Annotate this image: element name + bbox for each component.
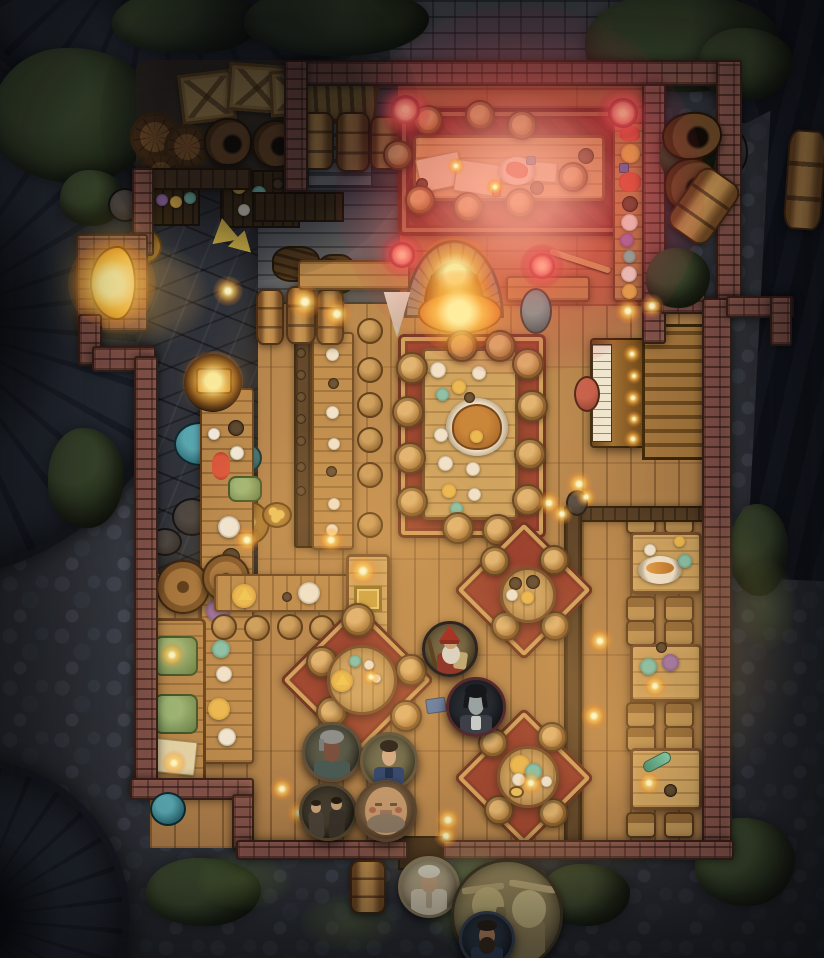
bar-plate-2	[328, 378, 339, 389]
token-gnome-wizard-hat-brim	[440, 640, 459, 644]
booth-mug-1	[656, 642, 667, 653]
battlemap-canvas[interactable]	[0, 0, 824, 958]
lamp-stand	[566, 490, 588, 516]
cleaver	[208, 428, 220, 440]
feast-plate-9	[442, 484, 456, 498]
feast-plate-6	[470, 430, 483, 443]
red-table-mug-2	[578, 148, 594, 164]
feast-plate-1	[430, 362, 446, 378]
booth-chair-4	[664, 596, 694, 622]
foliage-left-upper	[0, 48, 157, 183]
bar-plate-1	[326, 348, 339, 361]
feast-chair-5	[512, 348, 544, 380]
kitchen-pot-2	[218, 516, 240, 538]
roast-turkey	[452, 404, 502, 450]
glowing-bread-platter	[418, 292, 502, 334]
blue-pot-outside	[150, 792, 186, 826]
round-b-mug	[349, 655, 361, 667]
token-dwarf-brow-left	[375, 803, 382, 806]
flower-lamp-1	[391, 95, 420, 124]
hearth-barrel-3	[316, 289, 344, 345]
bar-mug-6	[296, 436, 306, 446]
corridor-weeds-2	[646, 248, 710, 308]
round-b-chair-3	[395, 654, 427, 686]
red-chair-8	[383, 140, 413, 170]
booth-chair-7	[626, 702, 656, 728]
veg-basket-greens	[228, 476, 262, 502]
side-stool-1	[211, 614, 237, 640]
partition-wall-h	[564, 506, 724, 522]
shelf-food-8	[623, 250, 636, 263]
hanging-meat	[212, 452, 230, 480]
booth-chair-11	[626, 812, 656, 838]
wall-south-west	[236, 840, 408, 860]
door-barrel	[350, 860, 386, 914]
feast-chair-7	[514, 438, 546, 470]
broken-barrel-storage-1	[204, 118, 252, 166]
flower-lamp-2	[608, 98, 638, 128]
edge-barrel	[783, 129, 824, 231]
token-boy-blue-collar	[385, 768, 392, 777]
feast-chair-6	[516, 390, 548, 422]
token-bearded-man-beard	[479, 937, 495, 954]
bar-plate-3	[326, 406, 339, 419]
daybed-cushion-1	[154, 636, 198, 676]
treasure-chest	[196, 368, 232, 394]
bar-plate-5	[326, 466, 337, 477]
bar-mug-2	[296, 348, 306, 358]
feast-plate-7	[438, 456, 453, 471]
feast-chair-2	[392, 396, 424, 428]
foliage-left-mid	[48, 428, 124, 528]
token-two-children[interactable]	[299, 783, 357, 841]
token-bearded-man-hair	[477, 920, 497, 931]
feast-plate-3	[472, 366, 486, 380]
shelf-food-9	[621, 266, 637, 282]
bar-stool-2	[357, 357, 383, 383]
note-parchment	[532, 161, 557, 183]
booth-plate-3	[662, 654, 679, 671]
feast-chair-9	[446, 330, 478, 362]
shelf-food-1	[620, 126, 640, 142]
red-chair-5	[405, 185, 435, 215]
blue-book	[425, 697, 447, 715]
feast-plate-10	[468, 488, 481, 501]
wall-stair-west	[284, 60, 308, 192]
round-a-mug-2	[526, 575, 540, 589]
round-a-chair-2	[539, 545, 569, 575]
red-chair-7	[505, 188, 535, 218]
side-stool-2	[244, 615, 270, 641]
red-chair-3	[507, 110, 537, 140]
feast-plate-2	[452, 380, 466, 394]
token-pale-elf-hair-right	[482, 694, 489, 709]
daybed-cushion-2	[154, 694, 198, 734]
blue-quill	[526, 156, 536, 165]
storage-barrel-2	[336, 112, 370, 172]
round-b-chair-5	[390, 700, 422, 732]
wall-south-east	[442, 840, 734, 860]
kitchen-plate-3	[212, 640, 230, 658]
wall-yard-v	[770, 296, 792, 346]
bar-stool-4	[357, 427, 383, 453]
kitchen-pot-1	[228, 420, 244, 436]
booth-table-2	[630, 644, 702, 702]
stone-circle-southwest	[0, 758, 130, 958]
red-chair-4	[558, 162, 588, 192]
shelf-food-5	[622, 196, 638, 212]
booth-plate-1	[644, 544, 656, 556]
bar-plate-4	[328, 438, 340, 450]
round-a-chair-1	[480, 546, 510, 576]
red-chair-6	[453, 192, 483, 222]
lemon	[674, 536, 685, 547]
wall-left-lower	[134, 356, 158, 792]
booth-plate-2	[678, 554, 692, 568]
shelf-food-4	[619, 172, 641, 192]
token-minotaur-statues-bull-head-2	[512, 890, 546, 928]
token-elder-robed-hair	[418, 865, 440, 878]
token-dwarf[interactable]	[355, 780, 417, 842]
bar-plate-6	[328, 498, 340, 510]
shelf-food-10	[622, 284, 637, 299]
kitchen-plate-5	[208, 698, 230, 720]
bar-mug-7	[296, 462, 306, 472]
token-elder-woman[interactable]	[302, 722, 362, 782]
shelf-food-6	[621, 214, 638, 231]
booth-chair-6	[664, 620, 694, 646]
token-bearded-man[interactable]	[459, 911, 515, 958]
wall-right-main	[702, 298, 732, 850]
feast-chair-4	[396, 486, 428, 518]
round-b-dot-2	[372, 674, 381, 683]
feast-plate-4	[436, 388, 449, 401]
feast-chair-10	[484, 330, 516, 362]
booth-chair-5	[626, 620, 656, 646]
wall-kitchen-north	[138, 168, 252, 190]
roast-fish	[646, 562, 674, 574]
kitchen-dot-3	[184, 192, 196, 204]
kitchen-dot-1	[156, 194, 168, 206]
kitchen-plate-4	[216, 666, 232, 682]
token-pale-elf[interactable]	[446, 677, 506, 737]
veg-basket-potatoes	[262, 502, 292, 528]
hearth-barrel-2	[286, 286, 316, 344]
kitchen-plate-1	[230, 446, 244, 460]
bar-stool-3	[357, 392, 383, 418]
red-die	[492, 188, 501, 197]
token-gnome-wizard[interactable]	[422, 621, 478, 677]
round-a-lemon	[521, 591, 534, 604]
feast-mug-1	[464, 392, 475, 403]
token-boy-blue-hair	[380, 740, 399, 752]
side-mug	[282, 592, 292, 602]
round-c-plate-3	[512, 773, 525, 786]
token-dwarf-brow-right	[390, 803, 397, 806]
token-two-children-body-1	[308, 812, 324, 839]
booth-chair-8	[664, 702, 694, 728]
token-pale-elf-shirt	[471, 716, 482, 730]
side-plate-2	[298, 582, 320, 604]
bar-plate-7	[326, 524, 338, 536]
bar-stool-6	[357, 512, 383, 538]
daybed-papers	[152, 738, 197, 776]
booth-chair-12	[664, 812, 694, 838]
shelf-food-2	[621, 144, 640, 163]
feast-chair-3	[394, 442, 426, 474]
bar-mug-4	[296, 392, 306, 402]
bar-stool-1	[357, 318, 383, 344]
token-gnome-wizard-staff	[426, 637, 437, 668]
hearth-barrel-1	[256, 289, 284, 345]
round-c-chair-2	[537, 722, 567, 752]
feast-chair-1	[396, 352, 428, 384]
flower-lamp-4	[529, 253, 555, 279]
round-b-dot-1	[364, 660, 374, 670]
feast-plate-5	[434, 428, 448, 442]
round-b-chair-1	[341, 603, 375, 637]
red-table-mug-1	[530, 181, 544, 195]
oven-window	[90, 246, 136, 320]
token-elder-woman-shoulders	[314, 761, 351, 782]
storage-jar-5	[238, 204, 250, 216]
kitchen-dot-2	[170, 196, 182, 208]
bar-mug-8	[296, 486, 306, 496]
token-two-children-hair-2	[331, 797, 341, 804]
blue-jug	[520, 288, 552, 334]
bar-mug-3	[296, 370, 306, 380]
piano-stool	[574, 376, 600, 412]
token-elder-woman-hair-side	[319, 739, 324, 751]
flower-lamp-3	[389, 242, 415, 268]
feast-chair-8	[512, 484, 544, 516]
bar-mug-5	[296, 414, 306, 424]
gray-room-shelf	[252, 192, 344, 222]
kitchen-bowl	[218, 728, 236, 746]
token-dwarf-mustache	[367, 814, 405, 833]
round-c-cup	[541, 776, 552, 787]
round-c-plate-2	[525, 763, 542, 780]
token-two-children-body-2	[328, 810, 345, 839]
booth-plate-4	[640, 658, 657, 675]
round-a-plate	[506, 589, 518, 601]
round-c-pretzel	[509, 786, 524, 798]
wall-top	[284, 60, 720, 86]
side-stool-3	[277, 614, 303, 640]
storage-jar-3	[272, 178, 284, 190]
booth-mug-2	[664, 784, 677, 797]
moss-right	[736, 560, 796, 650]
feast-chair-11	[442, 512, 474, 544]
shelf-food-7	[620, 233, 634, 247]
bar-stool-5	[357, 462, 383, 488]
red-chair-2	[465, 100, 495, 130]
lying-barrel-1	[156, 560, 210, 614]
stage-platform	[642, 324, 708, 460]
booth-chair-3	[626, 596, 656, 622]
token-elder-robed-robe-trim	[426, 891, 433, 908]
feast-plate-8	[466, 462, 480, 476]
